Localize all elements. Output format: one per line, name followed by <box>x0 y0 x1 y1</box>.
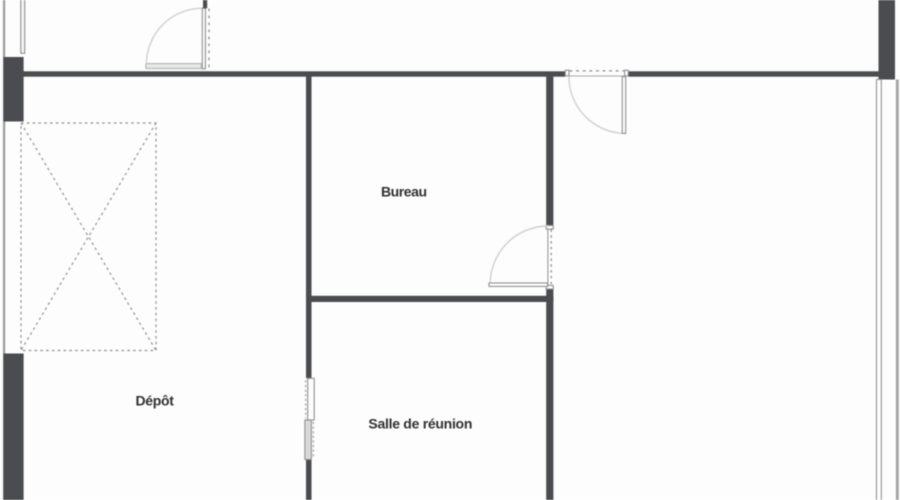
svg-text:Bureau: Bureau <box>381 184 427 200</box>
svg-text:Dépôt: Dépôt <box>135 393 174 409</box>
svg-text:Salle de réunion: Salle de réunion <box>368 416 472 432</box>
